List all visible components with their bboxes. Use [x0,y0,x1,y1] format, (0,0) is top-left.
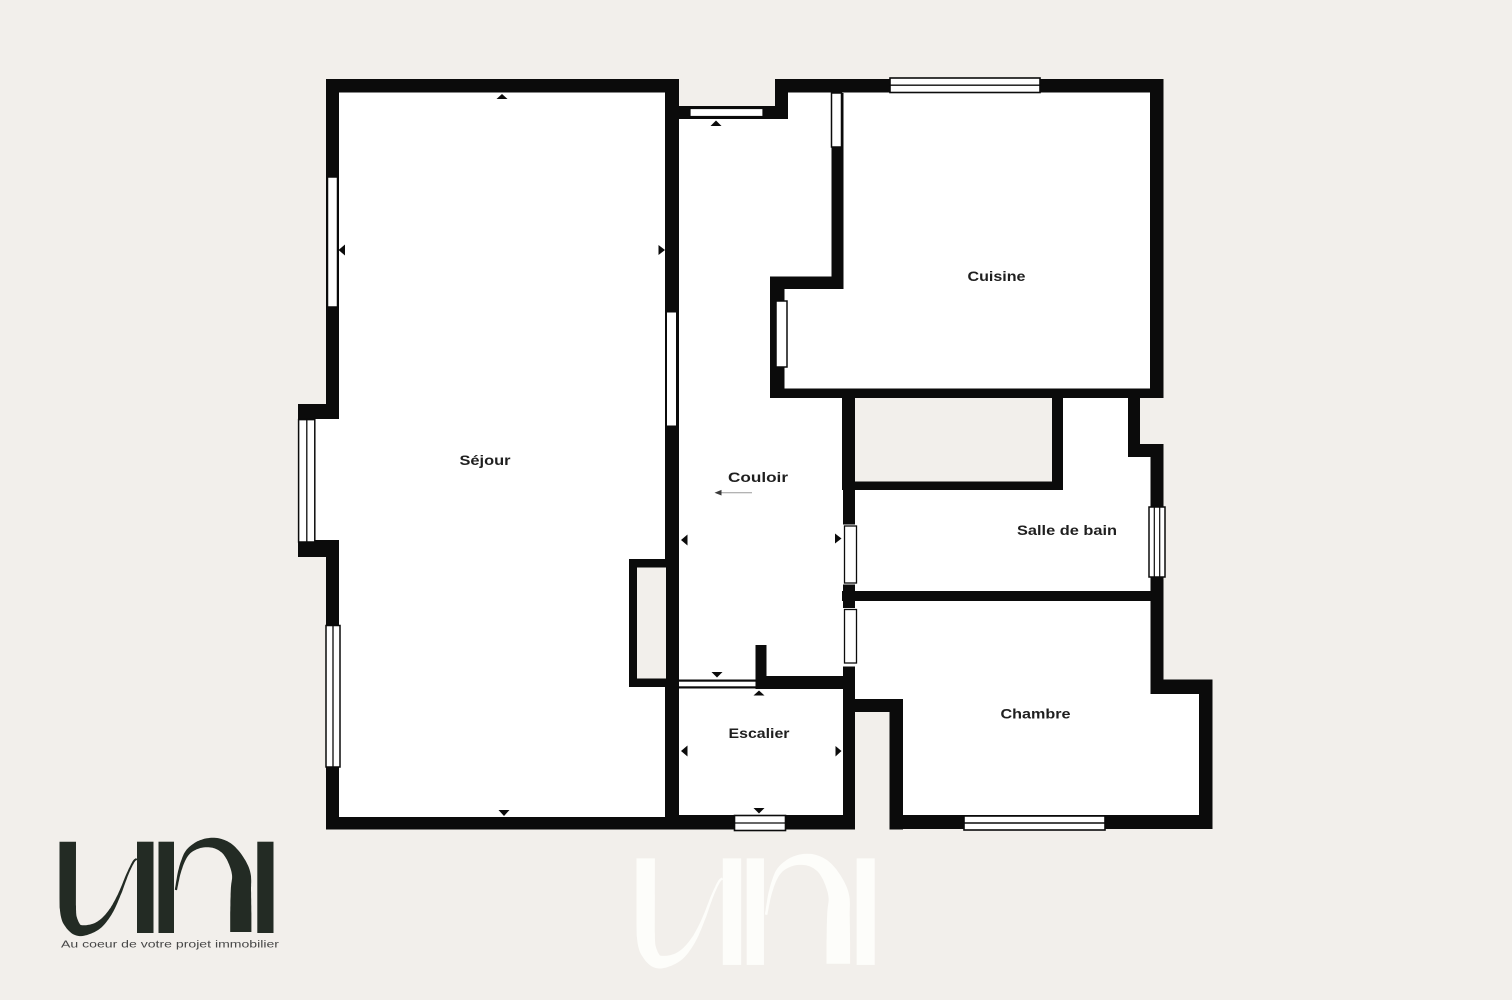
svg-text:Escalier: Escalier [729,725,791,741]
svg-text:Au coeur de votre projet immob: Au coeur de votre projet immobilier [61,939,280,951]
svg-text:Couloir: Couloir [728,469,789,485]
svg-text:Cuisine: Cuisine [968,268,1026,284]
svg-text:Salle de bain: Salle de bain [1017,522,1117,538]
svg-text:Séjour: Séjour [460,452,512,468]
svg-text:Chambre: Chambre [1001,706,1071,722]
